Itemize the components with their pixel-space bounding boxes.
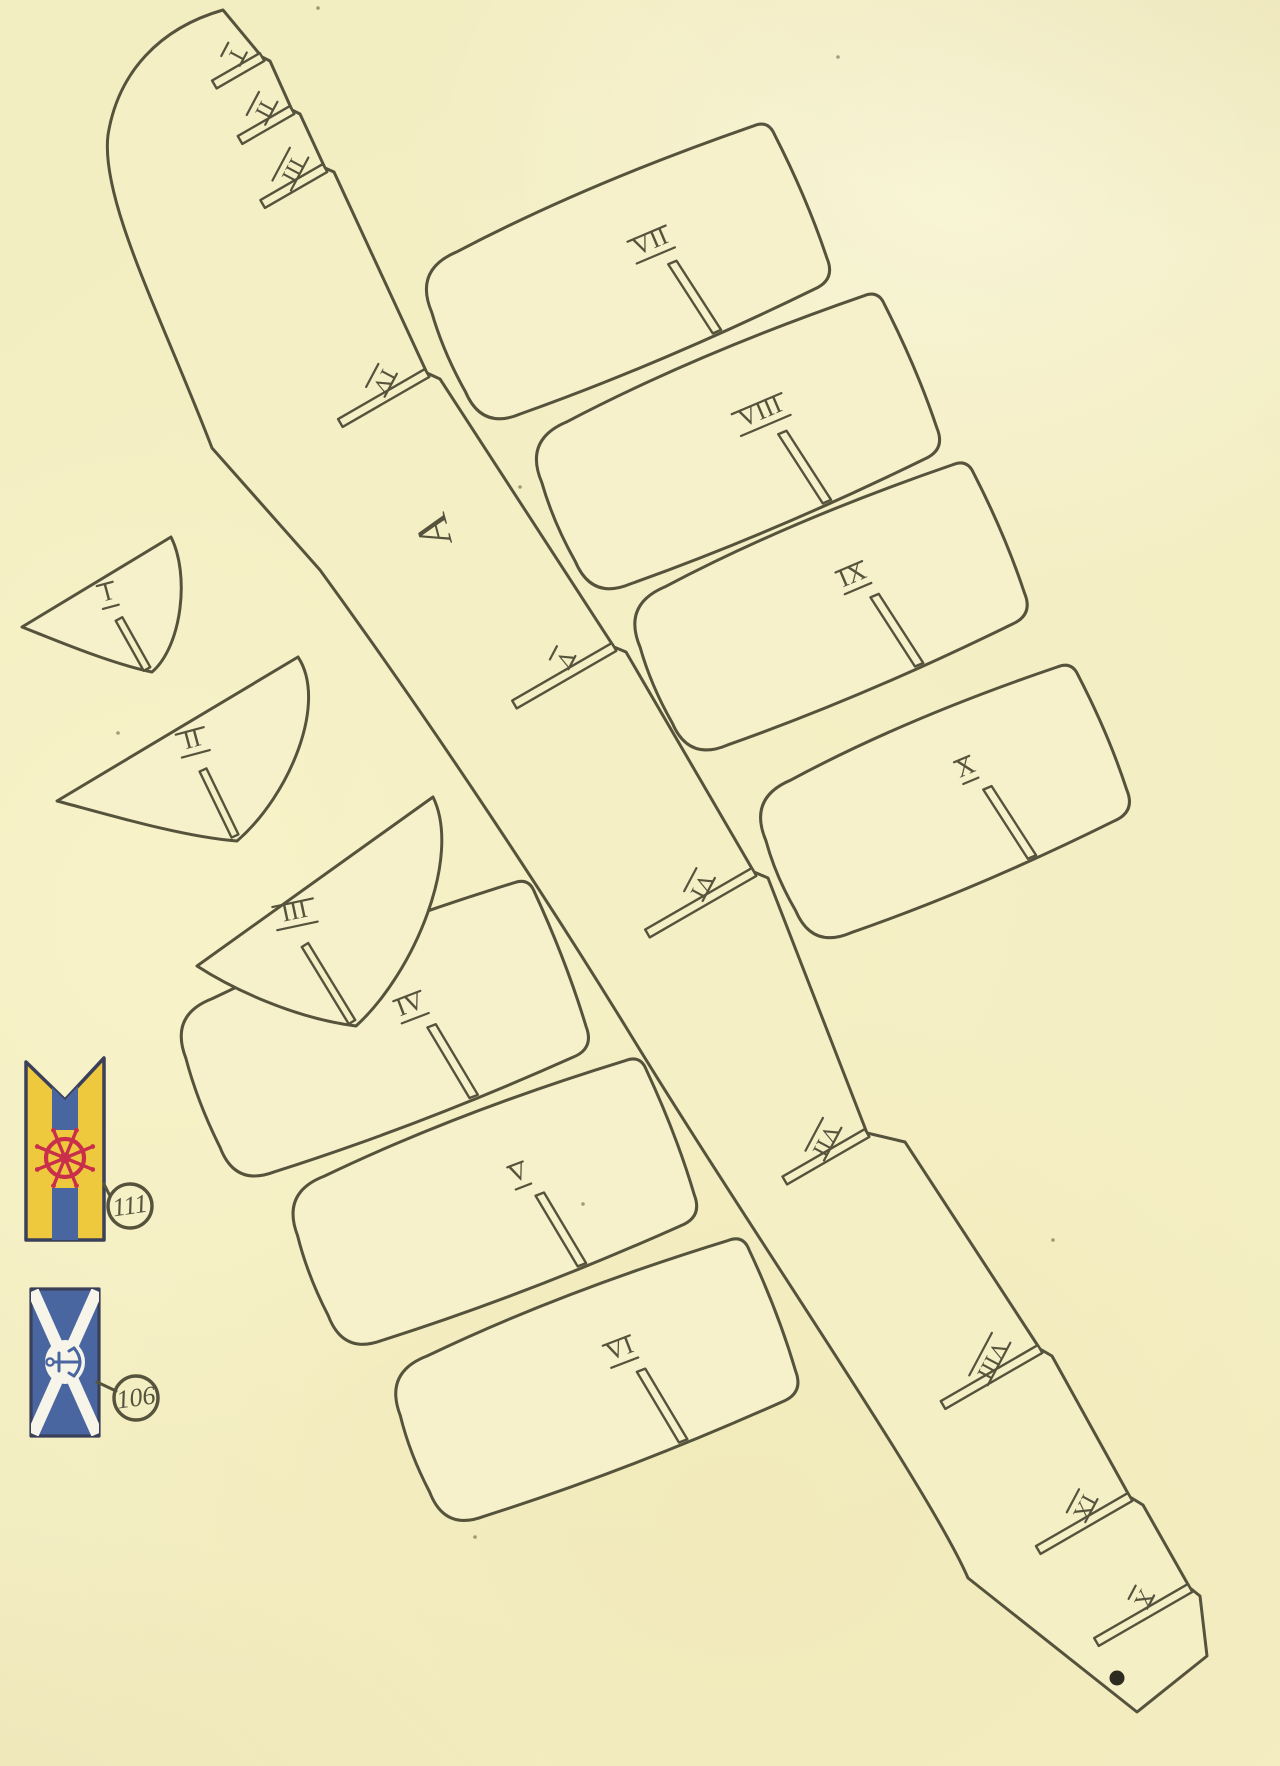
paper-speck bbox=[836, 55, 840, 59]
bow-frame-piece-I bbox=[22, 537, 181, 672]
paper-speck bbox=[316, 6, 320, 10]
scanned-pattern-sheet: IIIIIIIVVVIVIIVIIIIXXAVIIVIIIIXXIVVVIIII… bbox=[0, 0, 1280, 1766]
callout-106: 106 bbox=[97, 1376, 158, 1420]
pennant-stripe-top bbox=[52, 1086, 78, 1130]
paper-speck bbox=[1051, 1238, 1055, 1242]
callout-111: 111 bbox=[104, 1184, 152, 1228]
callout-number-111: 111 bbox=[111, 1189, 150, 1223]
paper-speck bbox=[473, 1535, 477, 1539]
pattern-sheet-drawing: IIIIIIIVVVIVIIVIIIIXXAVIIVIIIIXXIVVVIIII… bbox=[0, 0, 1280, 1766]
line-art-layer: IIIIIIIVVVIVIIVIIIIXXAVIIVIIIIXXIVVVIIII… bbox=[22, 6, 1207, 1712]
bow-frame-piece-II bbox=[57, 657, 309, 841]
pennant-stripe-bottom bbox=[52, 1188, 78, 1240]
paper-speck bbox=[518, 485, 522, 489]
paper-speck bbox=[116, 731, 120, 735]
callout-number-106: 106 bbox=[115, 1380, 158, 1414]
signal-flag-111-pennant bbox=[26, 1058, 104, 1240]
signal-flag-106-saltire bbox=[31, 1289, 99, 1436]
paper-speck bbox=[581, 1202, 585, 1206]
registration-dot bbox=[1110, 1671, 1125, 1686]
